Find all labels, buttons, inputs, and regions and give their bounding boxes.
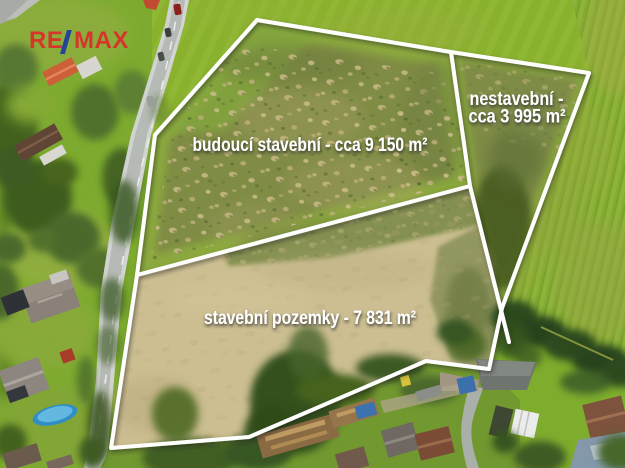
svg-text:budoucí stavební - cca 9 150 m: budoucí stavební - cca 9 150 m² <box>193 134 428 156</box>
svg-text:cca 3 995 m²: cca 3 995 m² <box>469 107 566 128</box>
svg-text:stavební pozemky - 7 831 m²: stavební pozemky - 7 831 m² <box>204 308 416 329</box>
svg-text:MAX: MAX <box>74 27 129 54</box>
svg-text:RE: RE <box>29 27 63 54</box>
